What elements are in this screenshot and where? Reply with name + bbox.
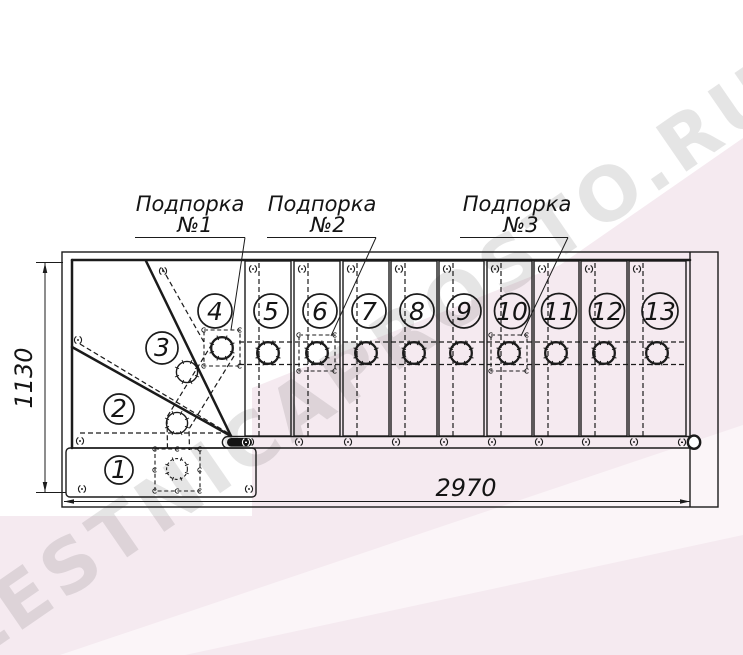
dimension-value: 2970 [435, 474, 496, 502]
fastener-icon [78, 485, 85, 492]
dimension-depth-1130: 1130 [10, 263, 66, 493]
staircase-plan-page: LESTNICAPROSTO.RU 5 6 [0, 0, 743, 655]
arrowhead-left [64, 499, 74, 504]
arrowhead-down [43, 482, 48, 492]
support-label-number: №3 [502, 213, 538, 237]
step-number: 2 [111, 394, 127, 423]
fastener-icon [76, 437, 83, 444]
support-label-number: №1 [176, 213, 212, 237]
step-number: 1 [111, 455, 127, 484]
step-number: 5 [263, 297, 279, 326]
arrowhead-up [43, 263, 48, 273]
step-number: 8 [409, 297, 425, 326]
step-number: 13 [644, 297, 676, 326]
step-number: 9 [456, 297, 472, 326]
staircase-plan-drawing: LESTNICAPROSTO.RU 5 6 [0, 0, 743, 655]
fastener-icon [74, 336, 81, 343]
fastener-icon [298, 265, 305, 272]
dimension-value: 1130 [10, 347, 38, 408]
fastener-icon [395, 265, 402, 272]
step-number: 7 [361, 297, 377, 326]
step-number: 6 [312, 297, 328, 326]
fastener-icon [159, 267, 166, 274]
support-square-1 [202, 328, 242, 368]
step-number: 4 [207, 297, 223, 326]
baluster-post-icon [210, 336, 235, 361]
support-label-number: №2 [309, 213, 345, 237]
step-number: 12 [591, 297, 623, 326]
fastener-icon [347, 265, 354, 272]
step-number: 10 [496, 297, 528, 326]
fastener-icon [249, 265, 256, 272]
step-number: 11 [543, 297, 575, 326]
handrail-end-knob [688, 436, 700, 449]
step-number: 3 [154, 333, 170, 362]
